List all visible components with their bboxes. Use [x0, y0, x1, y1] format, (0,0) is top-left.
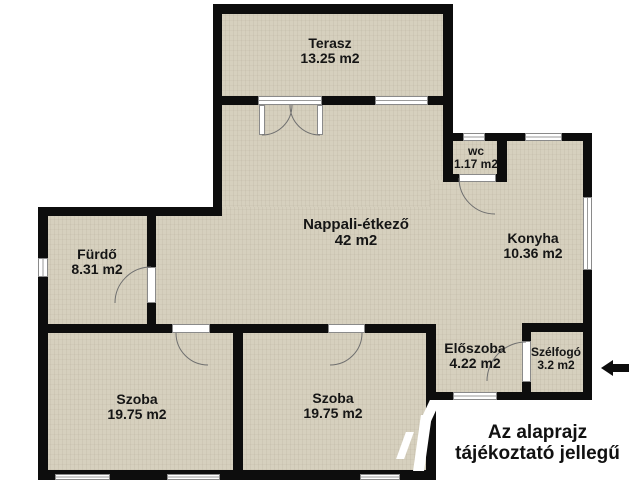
room-label-szoba2: Szoba 19.75 m2 [273, 391, 393, 421]
room-name: Konyha [478, 231, 588, 246]
room-name: Szoba [77, 392, 197, 407]
room-label-nappali: Nappali-étkező 42 m2 [286, 217, 426, 249]
wall-top [213, 4, 453, 14]
entrance-arrow-stem [612, 364, 629, 372]
door-panel-french-right [317, 105, 323, 135]
window-terasz [375, 96, 428, 105]
wall-szelfogo-top [525, 323, 592, 332]
window-french-door-top [258, 96, 322, 105]
window-szoba1-bottom-b [167, 474, 220, 480]
wall-eloszoba-bottom-2 [497, 392, 592, 400]
disclaimer-line-1: Az alaprajz [425, 422, 640, 443]
window-szoba1-bottom-a [55, 474, 110, 480]
wall-furdo-right-1 [147, 216, 156, 267]
wall-right-outer-1 [583, 141, 592, 197]
window-szoba2-bottom [360, 474, 400, 480]
room-area: 19.75 m2 [77, 407, 197, 422]
room-label-szelfogo: Szélfogó 3.2 m2 [516, 346, 596, 372]
door-panel-french-left [259, 105, 265, 135]
room-label-szoba1: Szoba 19.75 m2 [77, 392, 197, 422]
door-panel-wc [459, 174, 496, 182]
wall-left-upper [213, 4, 222, 216]
room-name: Szoba [273, 391, 393, 406]
room-name: Terasz [270, 36, 390, 51]
room-label-terasz: Terasz 13.25 m2 [270, 36, 390, 66]
wall-wc-stub-right [495, 174, 507, 182]
window-wc [463, 133, 485, 141]
room-area: 13.25 m2 [270, 51, 390, 66]
wall-terasz-bottom-2 [322, 96, 375, 105]
wall-terasz-bottom-1 [222, 96, 258, 105]
room-name: Szélfogó [516, 346, 596, 359]
wall-leftwing-top [40, 207, 222, 216]
wall-mid-2 [210, 324, 328, 333]
wall-szelfogo-left-1 [522, 323, 531, 341]
entrance-arrow [601, 360, 629, 376]
room-label-furdo: Fürdő 8.31 m2 [47, 247, 147, 277]
wall-right-outer-2 [583, 270, 592, 400]
wall-konyha-top-3 [562, 133, 592, 141]
room-name: Fürdő [47, 247, 147, 262]
wall-konyha-top-1 [444, 133, 463, 141]
wall-konyha-top-2 [485, 133, 525, 141]
room-name: Nappali-étkező [286, 217, 426, 233]
room-area: 19.75 m2 [273, 406, 393, 421]
wall-terasz-bottom-3 [428, 96, 443, 105]
window-eloszoba-bottom [453, 392, 497, 400]
door-panel-furdo [147, 267, 156, 303]
room-label-wc: wc 1.17 m2 [446, 145, 506, 171]
wall-szoba-divider [233, 324, 243, 480]
room-area: 42 m2 [286, 233, 426, 249]
disclaimer-line-2: tájékoztató jellegű [425, 443, 640, 464]
room-name: wc [446, 145, 506, 158]
window-konyha [525, 133, 562, 141]
door-panel-szoba2 [328, 324, 365, 333]
disclaimer-text: Az alaprajz tájékoztató jellegű [425, 422, 640, 464]
room-area: 3.2 m2 [516, 359, 596, 372]
room-area: 8.31 m2 [47, 262, 147, 277]
room-area: 1.17 m2 [446, 158, 506, 171]
room-area: 10.36 m2 [478, 246, 588, 261]
wall-furdo-right-2 [147, 303, 156, 333]
room-label-konyha: Konyha 10.36 m2 [478, 231, 588, 261]
door-panel-szoba1 [172, 324, 210, 333]
floor-plan: Terasz 13.25 m2 Nappali-étkező 42 m2 Kon… [0, 0, 640, 480]
